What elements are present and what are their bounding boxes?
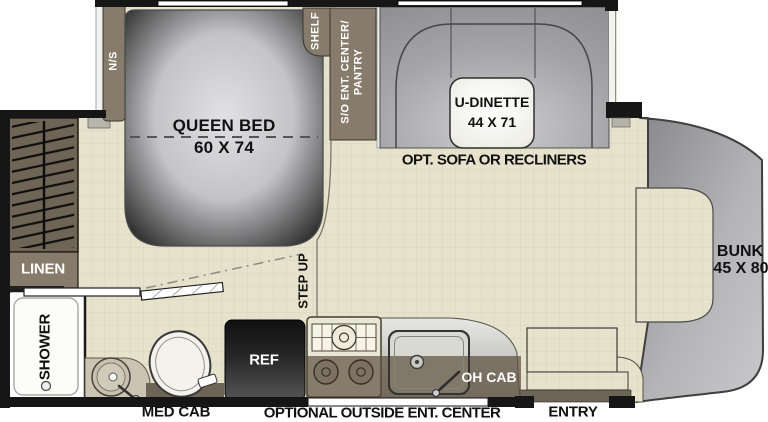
entry-label: ENTRY bbox=[548, 403, 597, 420]
queen-bed-label: QUEEN BED bbox=[173, 116, 276, 136]
oh-cab-label: OH CAB bbox=[461, 369, 516, 385]
opt-sofa-label: OPT. SOFA OR RECLINERS bbox=[402, 151, 586, 168]
dinette-label: U-DINETTE bbox=[455, 94, 530, 110]
bunk-label: BUNK bbox=[717, 243, 763, 261]
pantry-label: S/O ENT. CENTER/ PANTRY bbox=[339, 20, 364, 124]
ref-label: REF bbox=[249, 351, 278, 368]
med-cab-label: MED CAB bbox=[142, 403, 211, 420]
pantry-label-line2: PANTRY bbox=[352, 20, 365, 124]
pantry-label-line1: S/O ENT. CENTER/ bbox=[339, 20, 352, 124]
queen-bed-size-label: 60 X 74 bbox=[194, 138, 254, 158]
bunk-size-label: 45 X 80 bbox=[713, 260, 768, 278]
shelf-label: SHELF bbox=[310, 12, 323, 50]
linen-label: LINEN bbox=[21, 260, 65, 277]
shower-label: SHOWER bbox=[36, 314, 53, 380]
step-up-label: STEP UP bbox=[297, 253, 312, 308]
dinette-size-label: 44 X 71 bbox=[468, 114, 516, 130]
bath-sink bbox=[85, 358, 150, 403]
wardrobe bbox=[8, 118, 78, 252]
nightstand-label: N/S bbox=[108, 51, 121, 71]
rv-floorplan: N/S SHELF S/O ENT. CENTER/ PANTRY QUEEN … bbox=[0, 0, 768, 422]
optional-outside-label: OPTIONAL OUTSIDE ENT. CENTER bbox=[264, 404, 501, 421]
